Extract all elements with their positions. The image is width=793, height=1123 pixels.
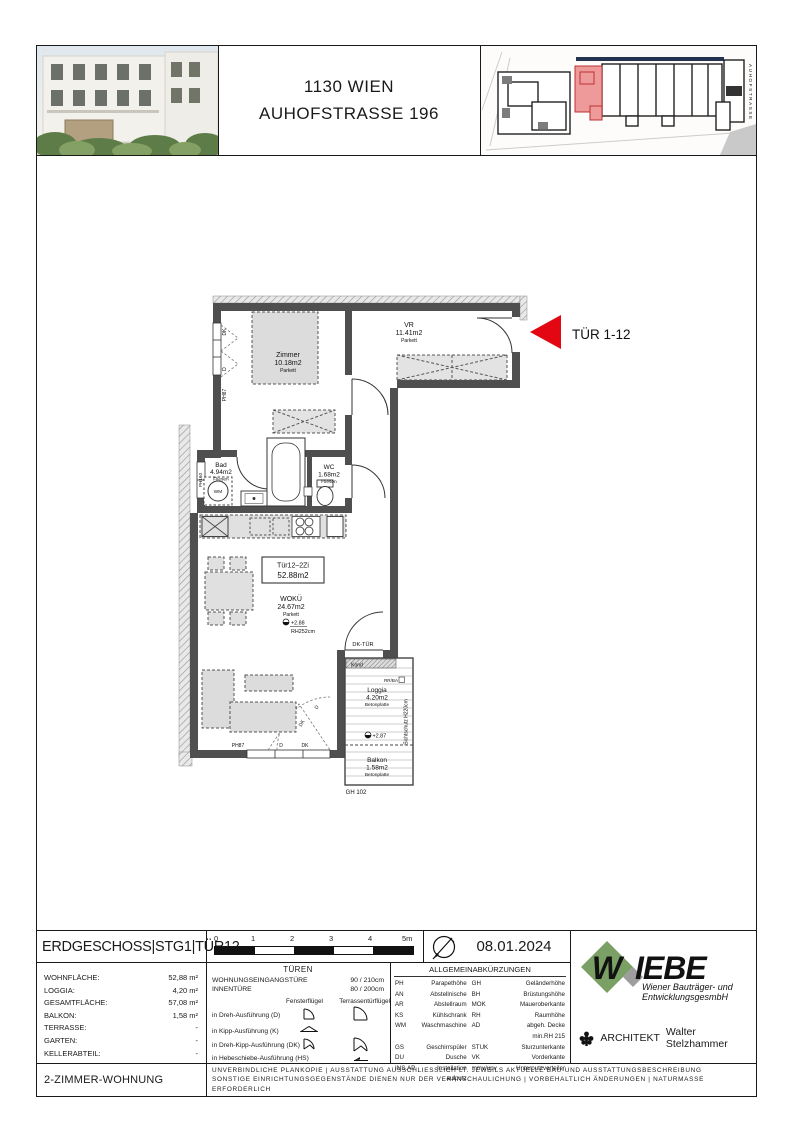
symbol-dk-terrasse-icon: [352, 1036, 369, 1053]
architect-label: ARCHITEKT: [600, 1032, 660, 1044]
abbr-key: RH: [472, 1011, 506, 1022]
balkon-floor: Betonplatte: [365, 772, 390, 778]
abbr-desc: Raumhöhe: [506, 1011, 565, 1022]
symbol-k-fenster-icon: [300, 1025, 318, 1033]
abbr-desc: Abstellnische: [421, 990, 467, 1001]
gh-label: GH 102: [346, 790, 367, 796]
abbr-desc: Sturzunterkante: [506, 1043, 565, 1054]
wardrobe-vr: [397, 355, 507, 380]
level-woku: +2.88: [291, 621, 305, 627]
area-value: 52,88 m²: [168, 972, 198, 985]
woku-floor: Parkett: [283, 612, 299, 618]
wall-label-dk: DK: [222, 328, 228, 336]
area-label: LOGGIA:: [44, 985, 75, 998]
floorplan: WM: [160, 280, 660, 820]
plan-date: 08.01.2024: [476, 938, 551, 955]
variant-d: in Dreh-Ausführung (D): [212, 1012, 280, 1019]
abbr-key: KS: [395, 1011, 421, 1022]
logo-sub2: EntwicklungsgesmbH: [642, 992, 729, 1002]
entrance-label: TÜR 1-12: [572, 327, 631, 342]
bad-sink: [241, 491, 267, 506]
area-label: KELLERABTEIL:: [44, 1048, 101, 1061]
header-siteplan: AUHOFSTRASSE: [480, 46, 756, 155]
bathtub: [267, 438, 305, 506]
unit-type: 2-ZIMMER-WOHNUNG: [44, 1074, 163, 1086]
abbr-key: AR: [395, 1000, 421, 1011]
zimmer-floor: Parkett: [280, 368, 296, 374]
door-row-label: WOHNUNGSEINGANGSTÜRE: [212, 977, 308, 984]
plan-title-cell: ERDGESCHOSS|STG1|TÜR12: [42, 936, 202, 958]
wm-label: WM: [214, 489, 223, 495]
level-marker-loggia: +2.87: [365, 732, 386, 740]
sheet-title-line1: 1130 WIEN: [304, 73, 394, 100]
siteplan-highlighted-unit: [575, 66, 602, 120]
abbr-desc: Brüstungshöhe: [506, 990, 565, 1001]
door-row-value: 80 / 200cm: [350, 986, 384, 993]
area-value: 1,58 m²: [173, 1010, 198, 1023]
sheet-title-line2: AUHOFSTRASSE 196: [259, 100, 439, 127]
abbr-key: AD: [472, 1021, 506, 1042]
date-cell: 08.01.2024: [462, 936, 566, 958]
abbr-desc: Kühlschrank: [421, 1011, 467, 1022]
abbreviations-cell: ALLGEMEINABKÜRZUNGEN PHParapethöheGHGelä…: [390, 962, 570, 1063]
areas-cell: WOHNFLÄCHE:52,88 m² LOGGIA:4,20 m² GESAM…: [44, 972, 198, 1060]
area-value: -: [196, 1048, 199, 1061]
sichtschutz-label: Sichtschutz H220cm: [404, 699, 410, 745]
abbr-key: MOK: [472, 1000, 506, 1011]
plan-sheet: { "header": { "title_line1": "1130 WIEN"…: [0, 0, 793, 1123]
wc-area: 1.68m2: [318, 472, 340, 479]
abbr-desc: Geschirrspüler: [421, 1043, 467, 1054]
kond-label: Kond: [351, 663, 363, 669]
col-terrassentuerfluegel: Terrassentürflügel: [339, 998, 390, 1005]
loggia-area: 4.20m2: [366, 695, 388, 702]
scale-tick-1: 1: [251, 934, 255, 943]
abbr-key: STUK: [472, 1043, 506, 1054]
abbr-key: WM: [395, 1021, 421, 1042]
vr-floor: Parkett: [401, 338, 417, 344]
loggia-name: Loggia: [367, 687, 387, 694]
area-label: WOHNFLÄCHE:: [44, 972, 99, 985]
rh-woku: RH252cm: [291, 629, 315, 635]
building-photo: [37, 46, 218, 155]
abbr-key: GS: [395, 1043, 421, 1054]
zimmer-name: Zimmer: [276, 352, 300, 359]
abbr-desc: Geländerhöhe: [506, 979, 565, 990]
abbr-desc: Waschmaschine: [421, 1021, 467, 1042]
area-value: 4,20 m²: [173, 985, 198, 998]
entrance-arrow-icon: [530, 315, 561, 349]
abbr-header: ALLGEMEINABKÜRZUNGEN: [394, 962, 566, 977]
unit-info-box: Tür12–2Zi 52.88m2: [262, 557, 324, 583]
wiebe-logo: W IEBE Wiener Bauträger- und Entwicklung…: [580, 938, 752, 1004]
scale-bar: 0 1 2 3 4 5m: [214, 934, 414, 958]
wc-floor: Fliesen: [321, 479, 337, 485]
architect-crest-icon: [578, 1030, 594, 1047]
unit-box-line2: 52.88m2: [277, 571, 309, 580]
tueren-header: TÜREN: [206, 965, 390, 974]
woku-area: 24.67m2: [277, 604, 304, 611]
area-label: BALKON:: [44, 1010, 77, 1023]
scale-tick-5: 5m: [402, 934, 412, 943]
area-value: -: [196, 1022, 199, 1035]
logo-iebe: IEBE: [635, 950, 708, 986]
variant-k: in Kipp-Ausführung (K): [212, 1028, 279, 1035]
vr-name: VR: [404, 322, 414, 329]
area-value: 57,08 m²: [168, 997, 198, 1010]
bottom-label-d: D: [279, 743, 283, 749]
siteplan-street-label: AUHOFSTRASSE: [748, 64, 753, 121]
abbr-key: PH: [395, 979, 421, 990]
abbr-desc: abgeh. Decke min.RH 215: [506, 1021, 565, 1042]
scale-tick-3: 3: [329, 934, 333, 943]
unit-type-cell: 2-ZIMMER-WOHNUNG: [44, 1063, 204, 1097]
wall-label-ph87: PH87: [222, 389, 228, 402]
col-fensterfluegel: Fensterflügel: [286, 998, 323, 1005]
logo-w: W: [592, 950, 625, 986]
variant-dk: in Dreh-Kipp-Ausführung (DK): [212, 1042, 300, 1049]
bottom-label-dk: DK: [302, 743, 310, 749]
disclaimer-line2: SONSTIGE EINRICHTUNGSGEGENSTÄNDE DIENEN …: [212, 1075, 752, 1094]
logo-sub1: Wiener Bauträger- und: [642, 982, 734, 992]
area-label: GARTEN:: [44, 1035, 77, 1048]
door-row-value: 90 / 210cm: [350, 977, 384, 984]
wall-label-d: D: [222, 367, 228, 371]
bad-floor: Fliesen: [213, 477, 229, 483]
disclaimer-line1: UNVERBINDLICHE PLANKOPIE | AUSSTATTUNG A…: [212, 1066, 752, 1076]
plan-title: ERDGESCHOSS|STG1|TÜR12: [42, 939, 240, 955]
disclaimer-cell: UNVERBINDLICHE PLANKOPIE | AUSSTATTUNG A…: [212, 1063, 752, 1097]
abbr-desc: Abstellraum: [421, 1000, 467, 1011]
symbol-d-fenster-icon: [302, 1007, 316, 1021]
bottom-label-ph87: PH87: [232, 743, 245, 749]
tueren-cell: TÜREN WOHNUNGSEINGANGSTÜRE 90 / 210cm IN…: [206, 962, 390, 1063]
door-row-label: INNENTÜRE: [212, 986, 252, 993]
level-loggia: +2.87: [373, 734, 387, 740]
zimmer-area: 10.18m2: [274, 360, 301, 367]
symbol-d-terrasse-icon: [352, 1005, 369, 1022]
variant-hs: in Hebeschiebe-Ausführung (HS): [212, 1055, 309, 1062]
area-value: -: [196, 1035, 199, 1048]
vr-area: 11.41m2: [396, 330, 423, 337]
abbr-desc: Maueroberkante: [506, 1000, 565, 1011]
area-label: GESAMTFLÄCHE:: [44, 997, 107, 1010]
wardrobe-hall: [273, 410, 335, 433]
symbol-hs-terrasse-icon: [352, 1054, 370, 1063]
symbol-dk-fenster-icon: [302, 1037, 316, 1051]
scale-tick-0: 0: [214, 934, 218, 943]
dining-table: [205, 557, 253, 625]
sofa-group: [202, 670, 296, 732]
brand-cell: W IEBE Wiener Bauträger- und Entwicklung…: [570, 930, 757, 1063]
kitchen-counter: [200, 515, 346, 538]
scale-tick-2: 2: [290, 934, 294, 943]
abbr-key: AN: [395, 990, 421, 1001]
wc-name: WC: [324, 464, 335, 471]
siteplan-drawing: AUHOFSTRASSE: [480, 46, 756, 155]
woku-name: WOKÜ: [280, 595, 302, 603]
abbr-key: BH: [472, 990, 506, 1001]
architect-name: Walter Stelzhammer: [666, 1026, 757, 1050]
rr-ba-label: RR/BA: [384, 678, 399, 683]
scale-bar-segments: [214, 946, 414, 955]
unit-box-line1: Tür12–2Zi: [277, 563, 309, 570]
terrace-label-dk: DK: [298, 718, 307, 728]
loggia-floor: Betonplatte: [365, 702, 390, 708]
bad-area: 4.94m2: [210, 469, 232, 476]
header-photo: [37, 46, 218, 155]
abbr-desc: Parapethöhe: [421, 979, 467, 990]
level-marker-woku: +2.88 RH252cm: [283, 619, 315, 635]
header-title-box: 1130 WIEN AUHOFSTRASSE 196: [218, 45, 480, 155]
scale-tick-4: 4: [368, 934, 372, 943]
entrance-marker: TÜR 1-12: [530, 315, 631, 349]
bad-name: Bad: [215, 462, 227, 469]
area-label: TERRASSE:: [44, 1022, 87, 1035]
dk-tuer-label: DK-TÜR: [352, 641, 373, 648]
balkon-name: Balkon: [367, 757, 387, 764]
balkon-area: 1.58m2: [366, 765, 388, 772]
abbr-key: GH: [472, 979, 506, 990]
north-compass-icon: [430, 933, 458, 961]
wall-label-ph160: PH160: [198, 473, 203, 487]
terrace-label-d: D: [314, 704, 321, 710]
